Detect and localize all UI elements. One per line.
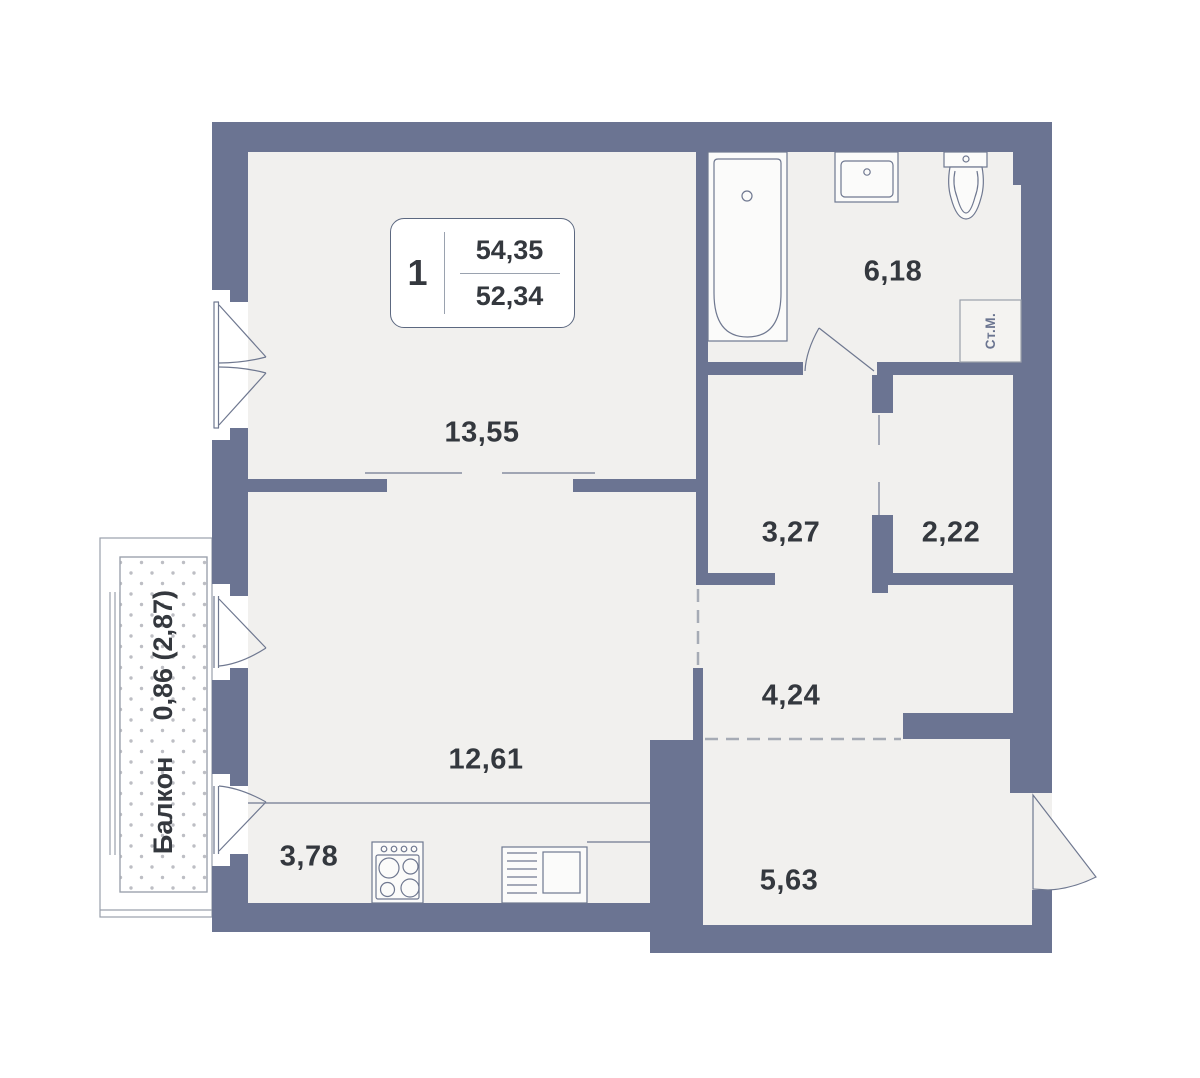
balcony-area: 0,86 (2,87) [148, 590, 179, 721]
bathtub-icon [708, 152, 787, 341]
room-label-closet: 2,22 [922, 517, 980, 550]
room-label-bedroom: 13,55 [444, 417, 519, 450]
room-label-hallway: 4,24 [762, 680, 820, 713]
floor-plan: 1 54,35 52,34 13,55 6,18 3,27 2,22 4,24 … [0, 0, 1200, 1078]
unit-area-living: 52,34 [476, 281, 544, 312]
entrance-door [1033, 795, 1096, 890]
card-fraction-line [460, 273, 560, 274]
unit-info-card: 1 54,35 52,34 [390, 218, 575, 328]
stove-icon [372, 842, 423, 903]
room-label-kitchen: 3,78 [280, 841, 338, 874]
unit-rooms-count: 1 [391, 219, 444, 327]
room-label-entry: 5,63 [760, 865, 818, 898]
washing-machine-label: Ст.М. [980, 291, 1000, 371]
room-label-bathroom: 6,18 [864, 256, 922, 289]
room-label-living: 12,61 [448, 744, 523, 777]
balcony-label: Балкон 0,86 (2,87) [145, 532, 181, 912]
room-label-wardrobe: 3,27 [762, 517, 820, 550]
sink-icon [835, 152, 898, 202]
unit-area-total: 54,35 [476, 235, 544, 266]
balcony-name: Балкон [148, 757, 179, 855]
kitchen-cabinet-icon [502, 847, 587, 903]
